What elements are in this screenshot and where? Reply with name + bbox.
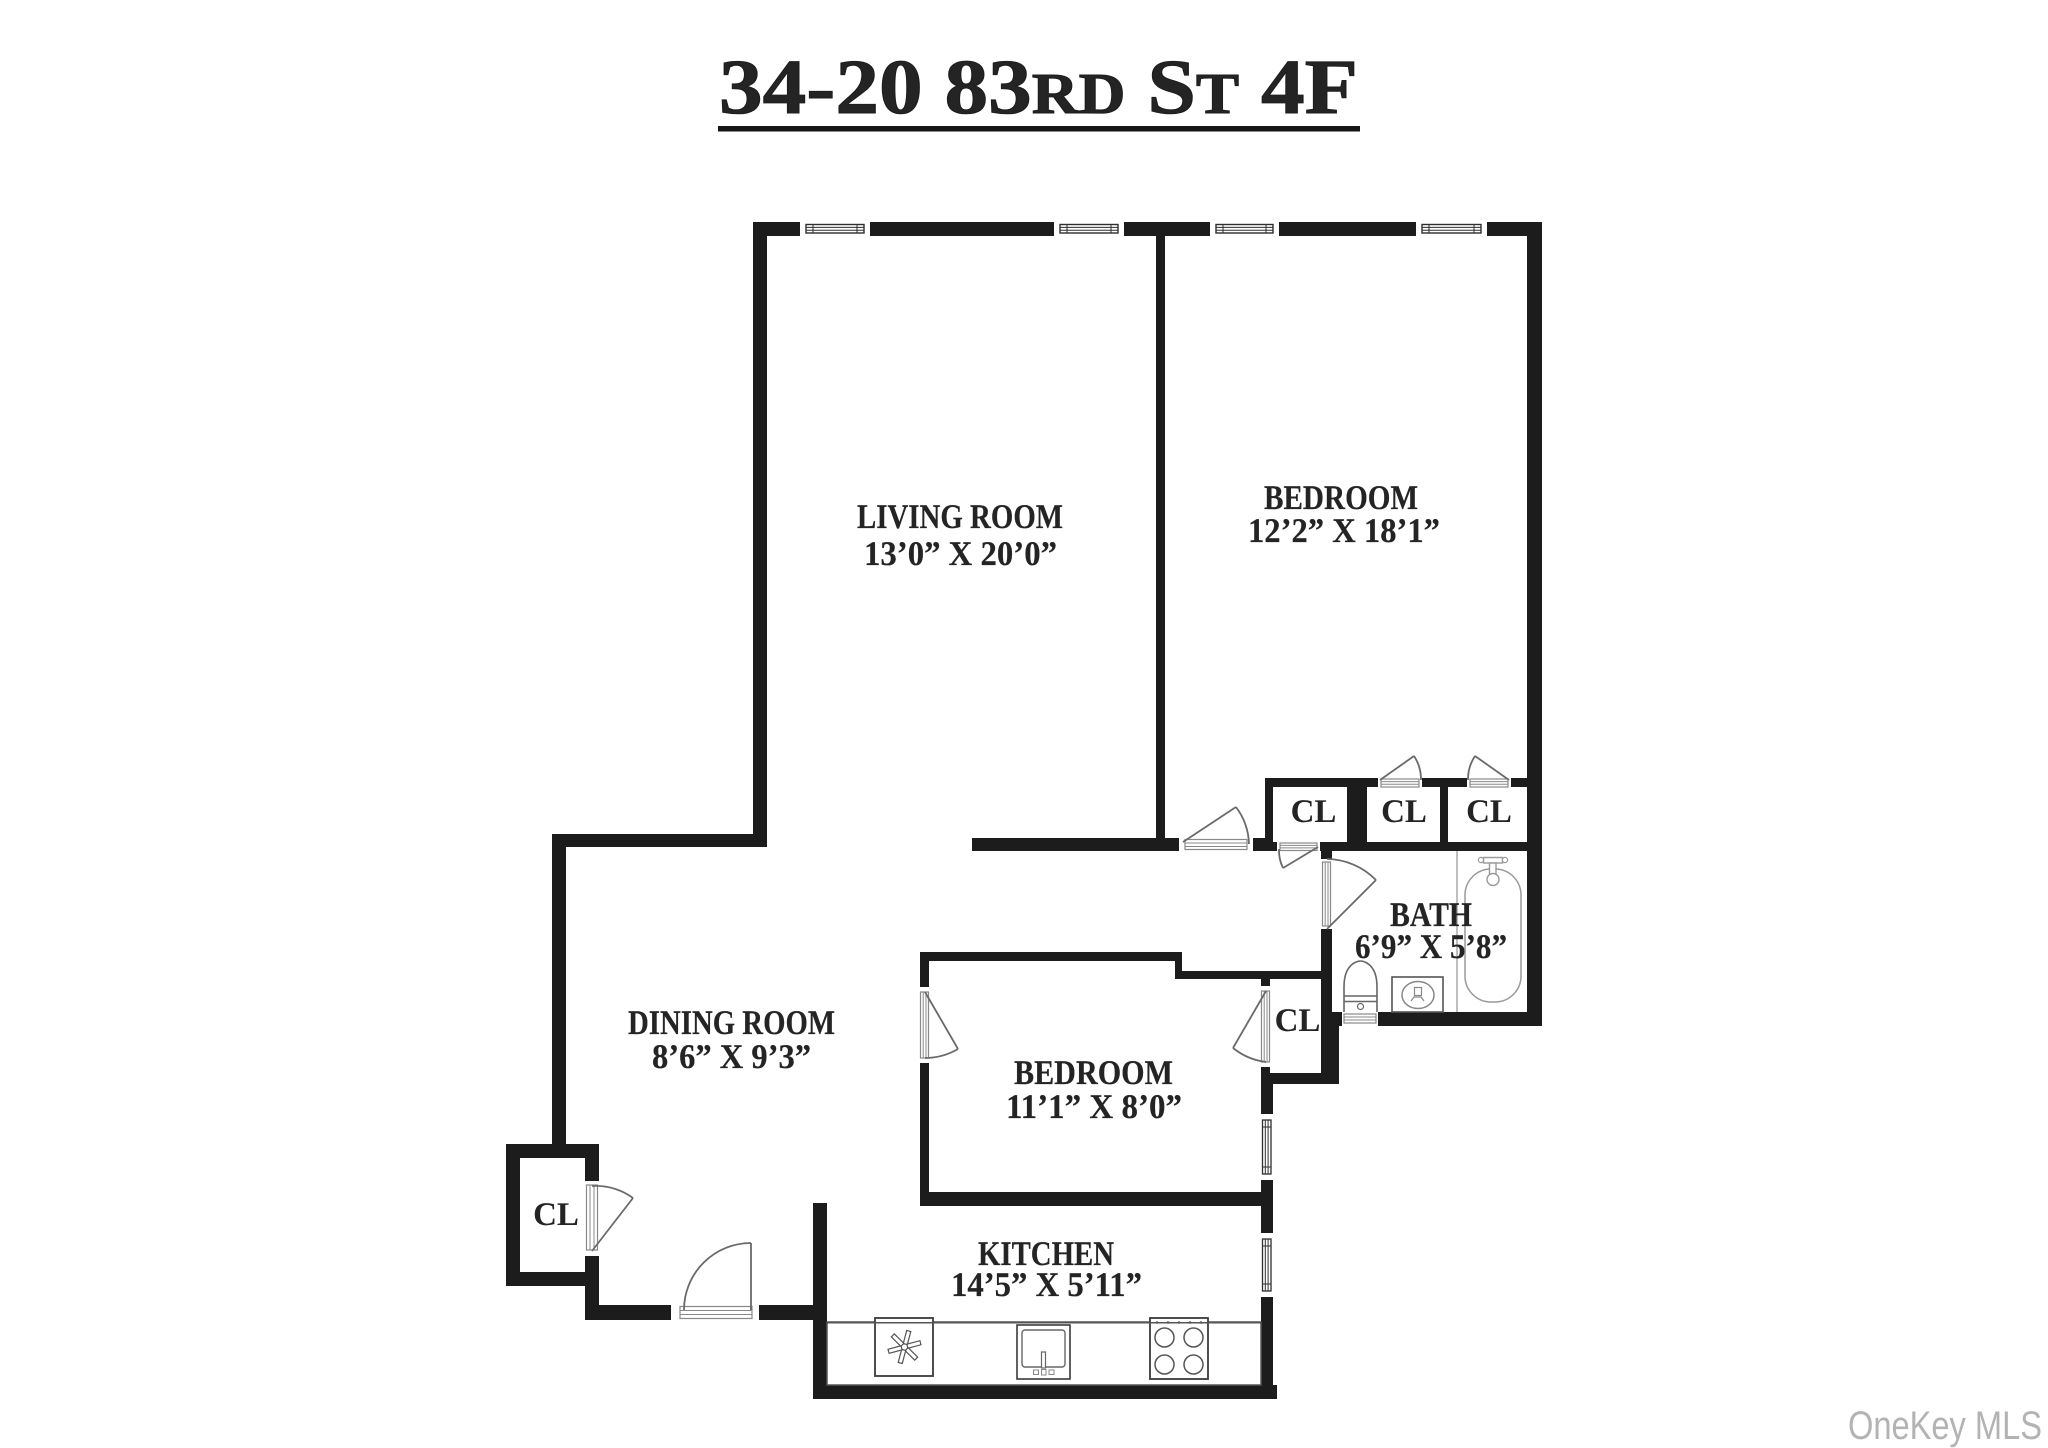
svg-text:CL: CL	[1275, 1003, 1321, 1039]
svg-text:12’2” X 18’1”: 12’2” X 18’1”	[1248, 512, 1440, 550]
svg-text:BEDROOM: BEDROOM	[1014, 1054, 1173, 1092]
svg-text:OneKey MLS: OneKey MLS	[1848, 1404, 2042, 1448]
svg-text:LIVING ROOM: LIVING ROOM	[857, 498, 1063, 536]
svg-text:CL: CL	[533, 1197, 579, 1233]
svg-text:DINING ROOM: DINING ROOM	[628, 1004, 835, 1042]
svg-text:CL: CL	[1381, 794, 1427, 830]
svg-text:14’5” X 5’11”: 14’5” X 5’11”	[951, 1266, 1142, 1304]
svg-text:6’9” X 5’8”: 6’9” X 5’8”	[1355, 928, 1507, 966]
svg-text:13’0” X 20’0”: 13’0” X 20’0”	[864, 535, 1057, 573]
svg-text:CL: CL	[1291, 794, 1337, 830]
svg-text:11’1” X 8’0”: 11’1” X 8’0”	[1006, 1088, 1182, 1126]
svg-text:CL: CL	[1466, 794, 1512, 830]
svg-text:8’6” X 9’3”: 8’6” X 9’3”	[652, 1038, 811, 1076]
